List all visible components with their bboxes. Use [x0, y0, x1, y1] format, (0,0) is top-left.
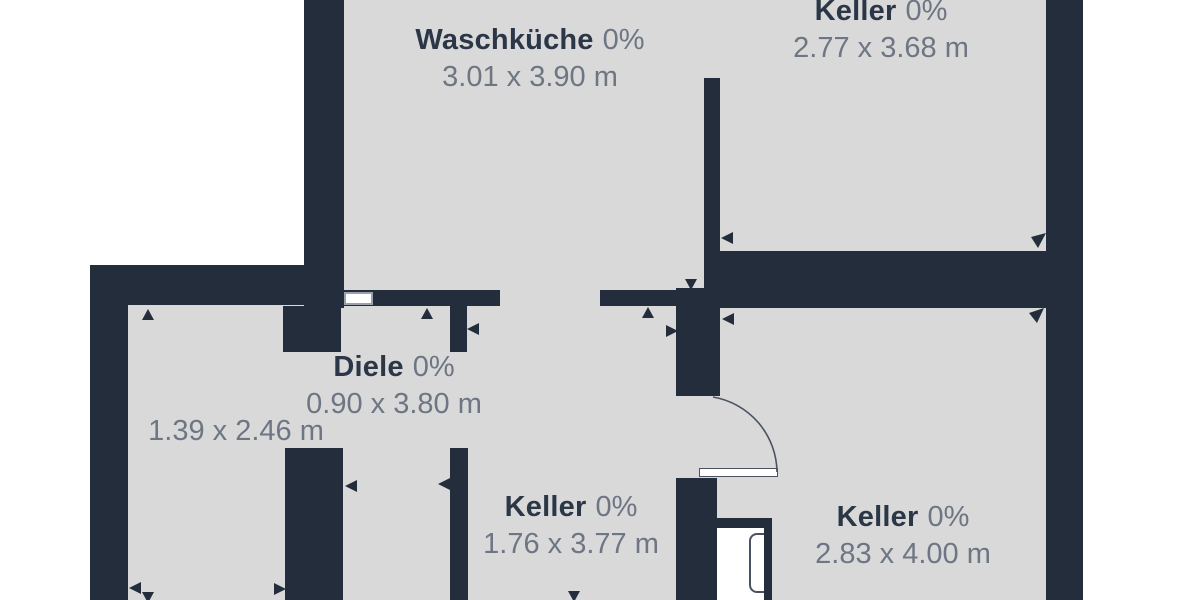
room-keller-bottom-right[interactable]	[720, 308, 1046, 600]
floor-plan: Waschküche0% 3.01 x 3.90 m Keller0% 2.77…	[0, 0, 1200, 600]
room-diele[interactable]	[341, 306, 450, 600]
wall-segment-diele-right-upper	[450, 306, 467, 352]
wall-segment-outer-left	[90, 265, 128, 600]
window	[344, 292, 373, 305]
wall-segment-diele-right-lower	[450, 448, 468, 600]
room-waschkueche[interactable]	[344, 0, 704, 290]
wall-segment-waschkueche-left	[304, 0, 344, 308]
room-keller-middle[interactable]	[467, 306, 676, 600]
wall-segment-door-lower	[676, 478, 717, 600]
wall-segment-outer-top-left	[90, 265, 344, 305]
wall-segment-diele-left-upper	[283, 306, 341, 352]
room-keller-top-right[interactable]	[720, 0, 1046, 251]
wall-segment-door-upper	[676, 288, 720, 396]
wall-segment-outer-right	[1046, 0, 1083, 600]
room-left[interactable]	[128, 305, 283, 600]
wall-segment-waschkueche-bottom-right	[600, 290, 678, 306]
wall-segment-right-rooms-divider	[704, 251, 1083, 308]
wall-segment-diele-left-lower	[285, 448, 343, 600]
